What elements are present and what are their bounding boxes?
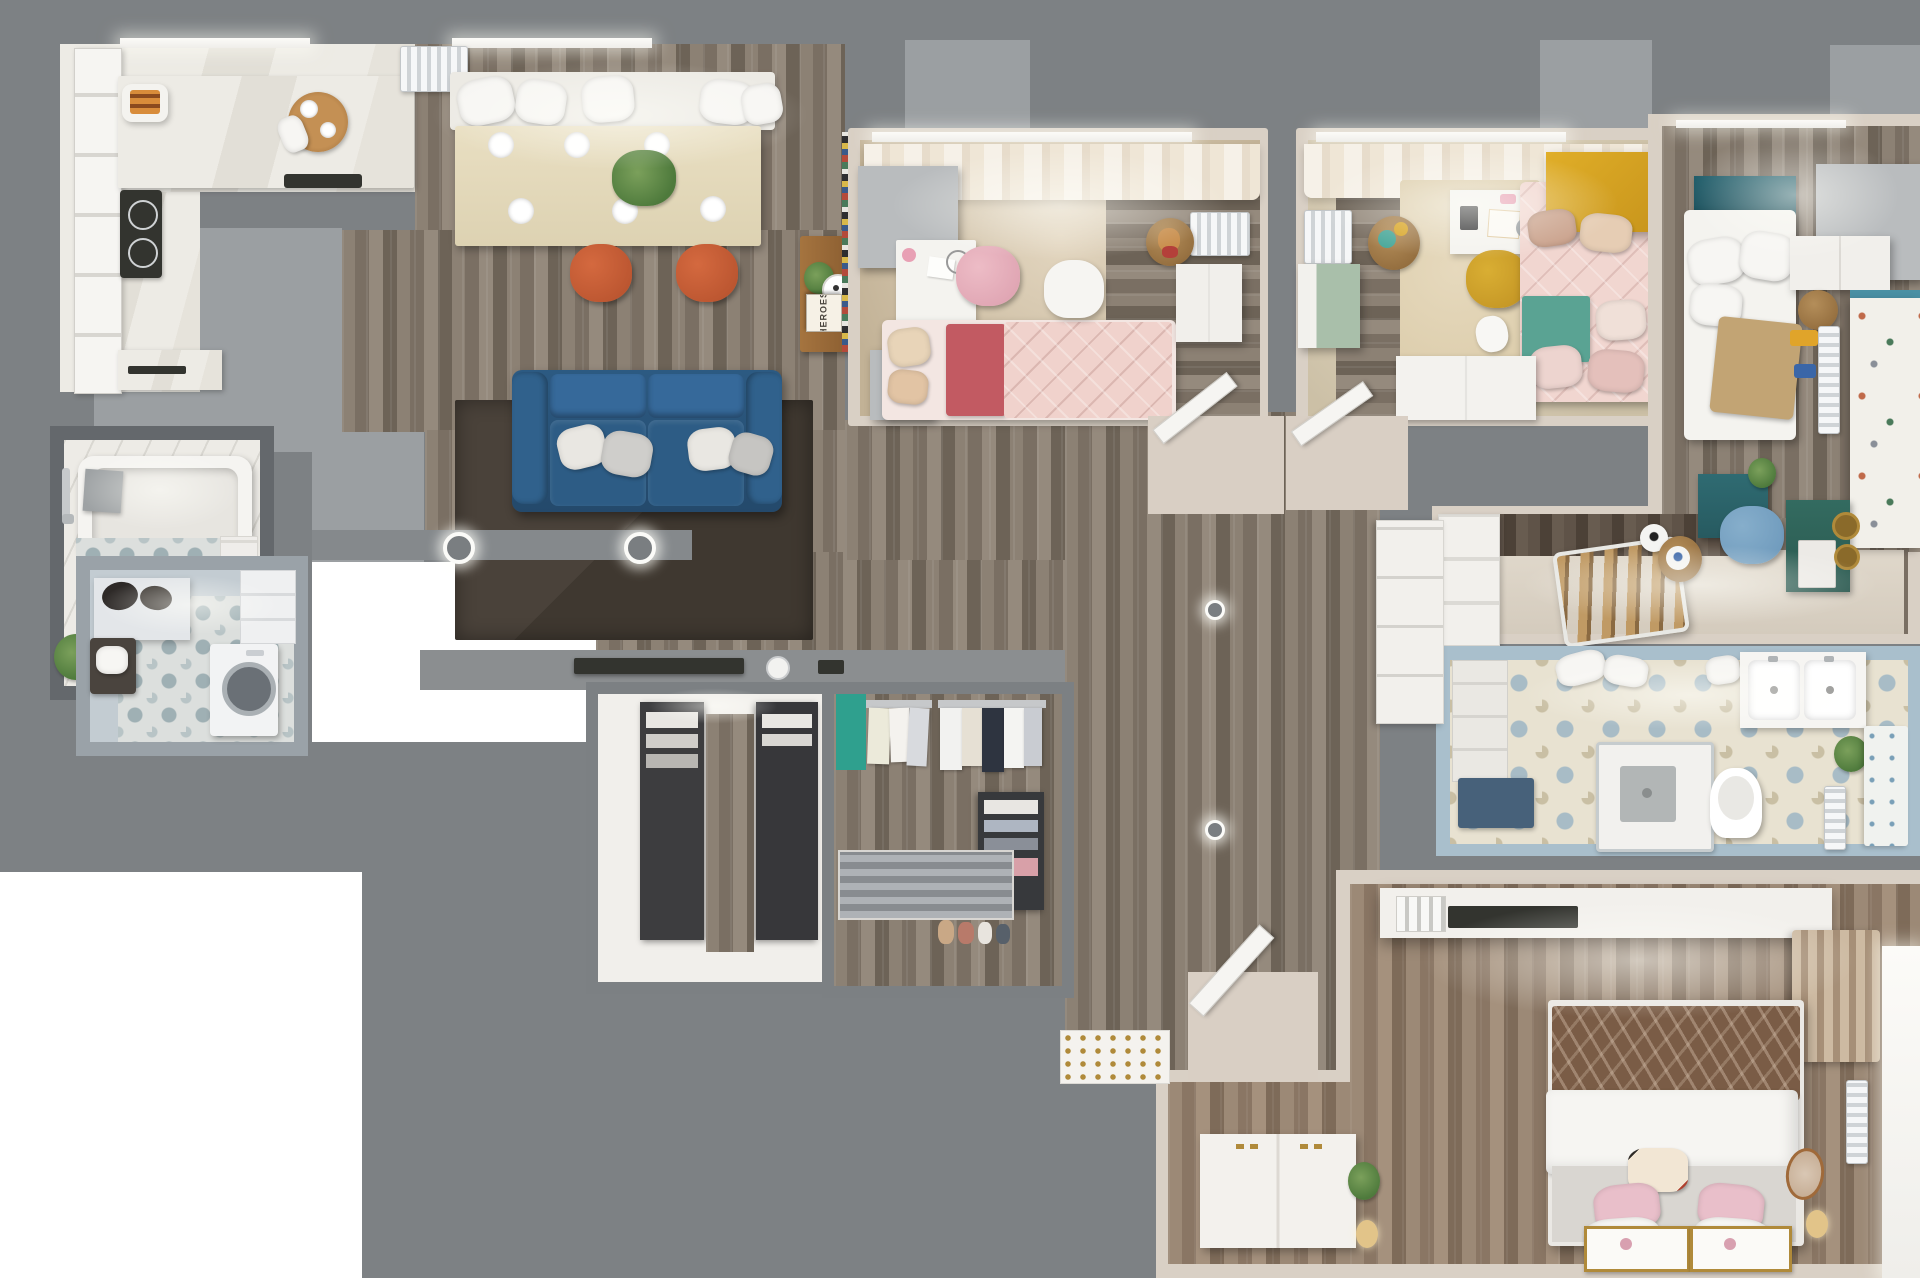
sink-faucet-1 (1768, 656, 1778, 662)
living-window (452, 38, 652, 48)
media-console (818, 660, 844, 674)
dresser-handle-1 (1236, 1144, 1244, 1149)
toilet-seat (1718, 776, 1754, 820)
dining-chair-1 (570, 244, 632, 302)
folded-stack-3 (984, 838, 1038, 850)
folded-stack-2 (984, 820, 1038, 832)
kids-room-2-window (1316, 132, 1566, 142)
hob-burner-1 (128, 200, 158, 230)
boys-throw-blanket (1709, 316, 1803, 420)
shoe-peg-board (1060, 1030, 1170, 1084)
clothes-8 (1024, 708, 1042, 766)
toy-yellow (1394, 222, 1408, 236)
frame-flower-2 (1724, 1238, 1736, 1250)
kids-room-2-bench (1396, 356, 1536, 420)
wall-light-top-2 (1540, 40, 1652, 132)
sofa-back-cushion-2 (648, 374, 744, 418)
kids-room-1-radiator (1190, 212, 1250, 256)
tray-cup-1 (300, 100, 318, 118)
shoe-2 (958, 922, 974, 944)
shoe-4 (996, 924, 1010, 944)
clothes-7 (1004, 708, 1024, 768)
washer-door (222, 662, 276, 716)
toy-teal (1378, 230, 1396, 248)
kids-room-2-pillow-1 (1595, 298, 1648, 341)
kids-room-1-duvet (1004, 322, 1172, 418)
boys-wall-cabinet (1790, 236, 1890, 290)
plate-2 (564, 132, 590, 158)
kids-room-1-chair (956, 246, 1020, 306)
plate-6 (700, 196, 726, 222)
clothes-3 (906, 708, 929, 767)
wall-light-top-1 (905, 40, 1030, 132)
master-dresser (1200, 1134, 1356, 1248)
washer-panel (246, 650, 264, 656)
bench-pillow-3 (580, 74, 636, 124)
kids-room-2-chair (1466, 250, 1528, 308)
closet-2-rod-left (866, 700, 932, 708)
film-reel-1 (1832, 512, 1860, 540)
plate-4 (508, 198, 534, 224)
frame-flower-1 (1620, 1238, 1632, 1250)
floor-plan-stage: HEROES (0, 0, 1920, 1278)
master-lamp-2 (1806, 1210, 1828, 1238)
master-window (1882, 946, 1920, 1278)
closet-1-stack-4 (762, 714, 812, 728)
ceiling-spotlight-1 (443, 532, 475, 564)
basket-ball (1666, 546, 1690, 570)
entry-mat (838, 850, 1014, 920)
clothes-4 (940, 708, 962, 770)
dining-chair-2 (676, 244, 738, 302)
bathroom-2-radiator (1824, 786, 1846, 850)
polar-bear-rug (1044, 260, 1104, 318)
shower-head (62, 514, 74, 524)
boys-room-window (1676, 120, 1846, 128)
hamper-towel (96, 646, 128, 674)
closet-1-stack-5 (762, 734, 812, 746)
kitchen-sink (284, 174, 362, 188)
bathroom-2-panel (1452, 660, 1508, 782)
clothes-6 (982, 708, 1004, 772)
toy-truck-1 (1790, 330, 1818, 346)
gym-cabinet-door (1798, 540, 1836, 588)
wall-clock-center (833, 285, 839, 291)
clothes-5 (962, 708, 982, 766)
toaster-slots (130, 90, 160, 114)
sink-drain-2 (1826, 686, 1834, 694)
dresser-handle-4 (1314, 1144, 1322, 1149)
master-curtains (1792, 930, 1880, 1062)
gym-wardrobe (1438, 514, 1500, 646)
hall-light-1 (1205, 600, 1225, 620)
boys-desk-plant (1748, 458, 1776, 488)
bath-shelf (83, 469, 124, 514)
kitchen-window (120, 38, 310, 48)
master-tv (1448, 906, 1578, 928)
tv (574, 658, 744, 674)
ceiling-vent (1396, 896, 1446, 932)
kids-room-2-desk-pink (1500, 194, 1516, 204)
kids-room-2-desk-tablet (1460, 206, 1478, 230)
void-white-bottom-left (0, 872, 362, 1278)
kids-room-2-radiator (1304, 210, 1352, 264)
boys-rug (1850, 298, 1920, 548)
kids-room-2-cushion-2 (1578, 211, 1634, 254)
sink-faucet-2 (1824, 656, 1834, 662)
kids-room-1-desk-lamp (902, 248, 916, 262)
boys-desk-chair (1720, 506, 1784, 564)
kids-room-2-pillow-2 (1528, 343, 1584, 390)
closet-2-rod-right (938, 700, 1046, 708)
floor-frame-2 (1690, 1226, 1792, 1272)
master-plant (1348, 1162, 1380, 1200)
shower-bar (62, 468, 70, 520)
closet-1-stack-2 (646, 734, 698, 748)
sofa-armrest-left (512, 372, 548, 504)
kitchen-lower-vent (128, 366, 186, 374)
hallway-wardrobe (1376, 520, 1444, 724)
master-brown-blanket (1552, 1006, 1800, 1100)
sink-drain-1 (1770, 686, 1778, 694)
film-reel-2 (1834, 544, 1860, 570)
hallway-floor-upper (845, 420, 1065, 560)
floor-frame-1 (1584, 1226, 1690, 1272)
closet-1-wood-center (706, 714, 754, 952)
speaker (766, 656, 790, 680)
bathroom-2-bench (1458, 778, 1534, 828)
table-centerpiece-plant (612, 150, 676, 206)
plate-1 (488, 132, 514, 158)
dresser-handle-2 (1250, 1144, 1258, 1149)
closet-1-stack-3 (646, 754, 698, 768)
heroes-sign: HEROES (806, 294, 842, 332)
ceiling-spotlight-2 (624, 532, 656, 564)
kids-room-2-pillow-3 (1586, 348, 1645, 395)
bathroom-2-plant (1834, 736, 1868, 772)
clothes-1 (867, 708, 891, 765)
kitchen-cabinets (74, 48, 122, 394)
kids-room-2-cabinet (1298, 264, 1360, 348)
kids-room-1-window (872, 132, 1192, 142)
teddy-blanket (1162, 246, 1178, 258)
toy-truck-2 (1794, 364, 1816, 378)
shoe-1 (938, 920, 954, 944)
dresser-handle-3 (1300, 1144, 1308, 1149)
boys-radiator (1818, 326, 1840, 434)
closet-1-stack-1 (646, 712, 698, 728)
hob-burner-2 (128, 238, 158, 268)
tray-cup-2 (320, 122, 336, 138)
boys-snack-basket (1798, 290, 1838, 330)
shower-curtain (1864, 726, 1908, 846)
kids-room-1-shelf (1176, 264, 1242, 342)
laundry-shelf (240, 570, 296, 644)
hall-light-2 (1205, 820, 1225, 840)
kids-room-1-red-throw (946, 324, 1006, 416)
shower-drain (1642, 788, 1652, 798)
sofa-back-cushion-1 (550, 374, 646, 418)
shoe-3 (978, 922, 992, 944)
closet-2-teal-accent (836, 694, 866, 770)
master-lamp-1 (1356, 1220, 1378, 1248)
master-radiator (1846, 1080, 1868, 1164)
kids-room-1-bed-pillow-2 (886, 368, 929, 406)
folded-stack-1 (984, 800, 1038, 814)
